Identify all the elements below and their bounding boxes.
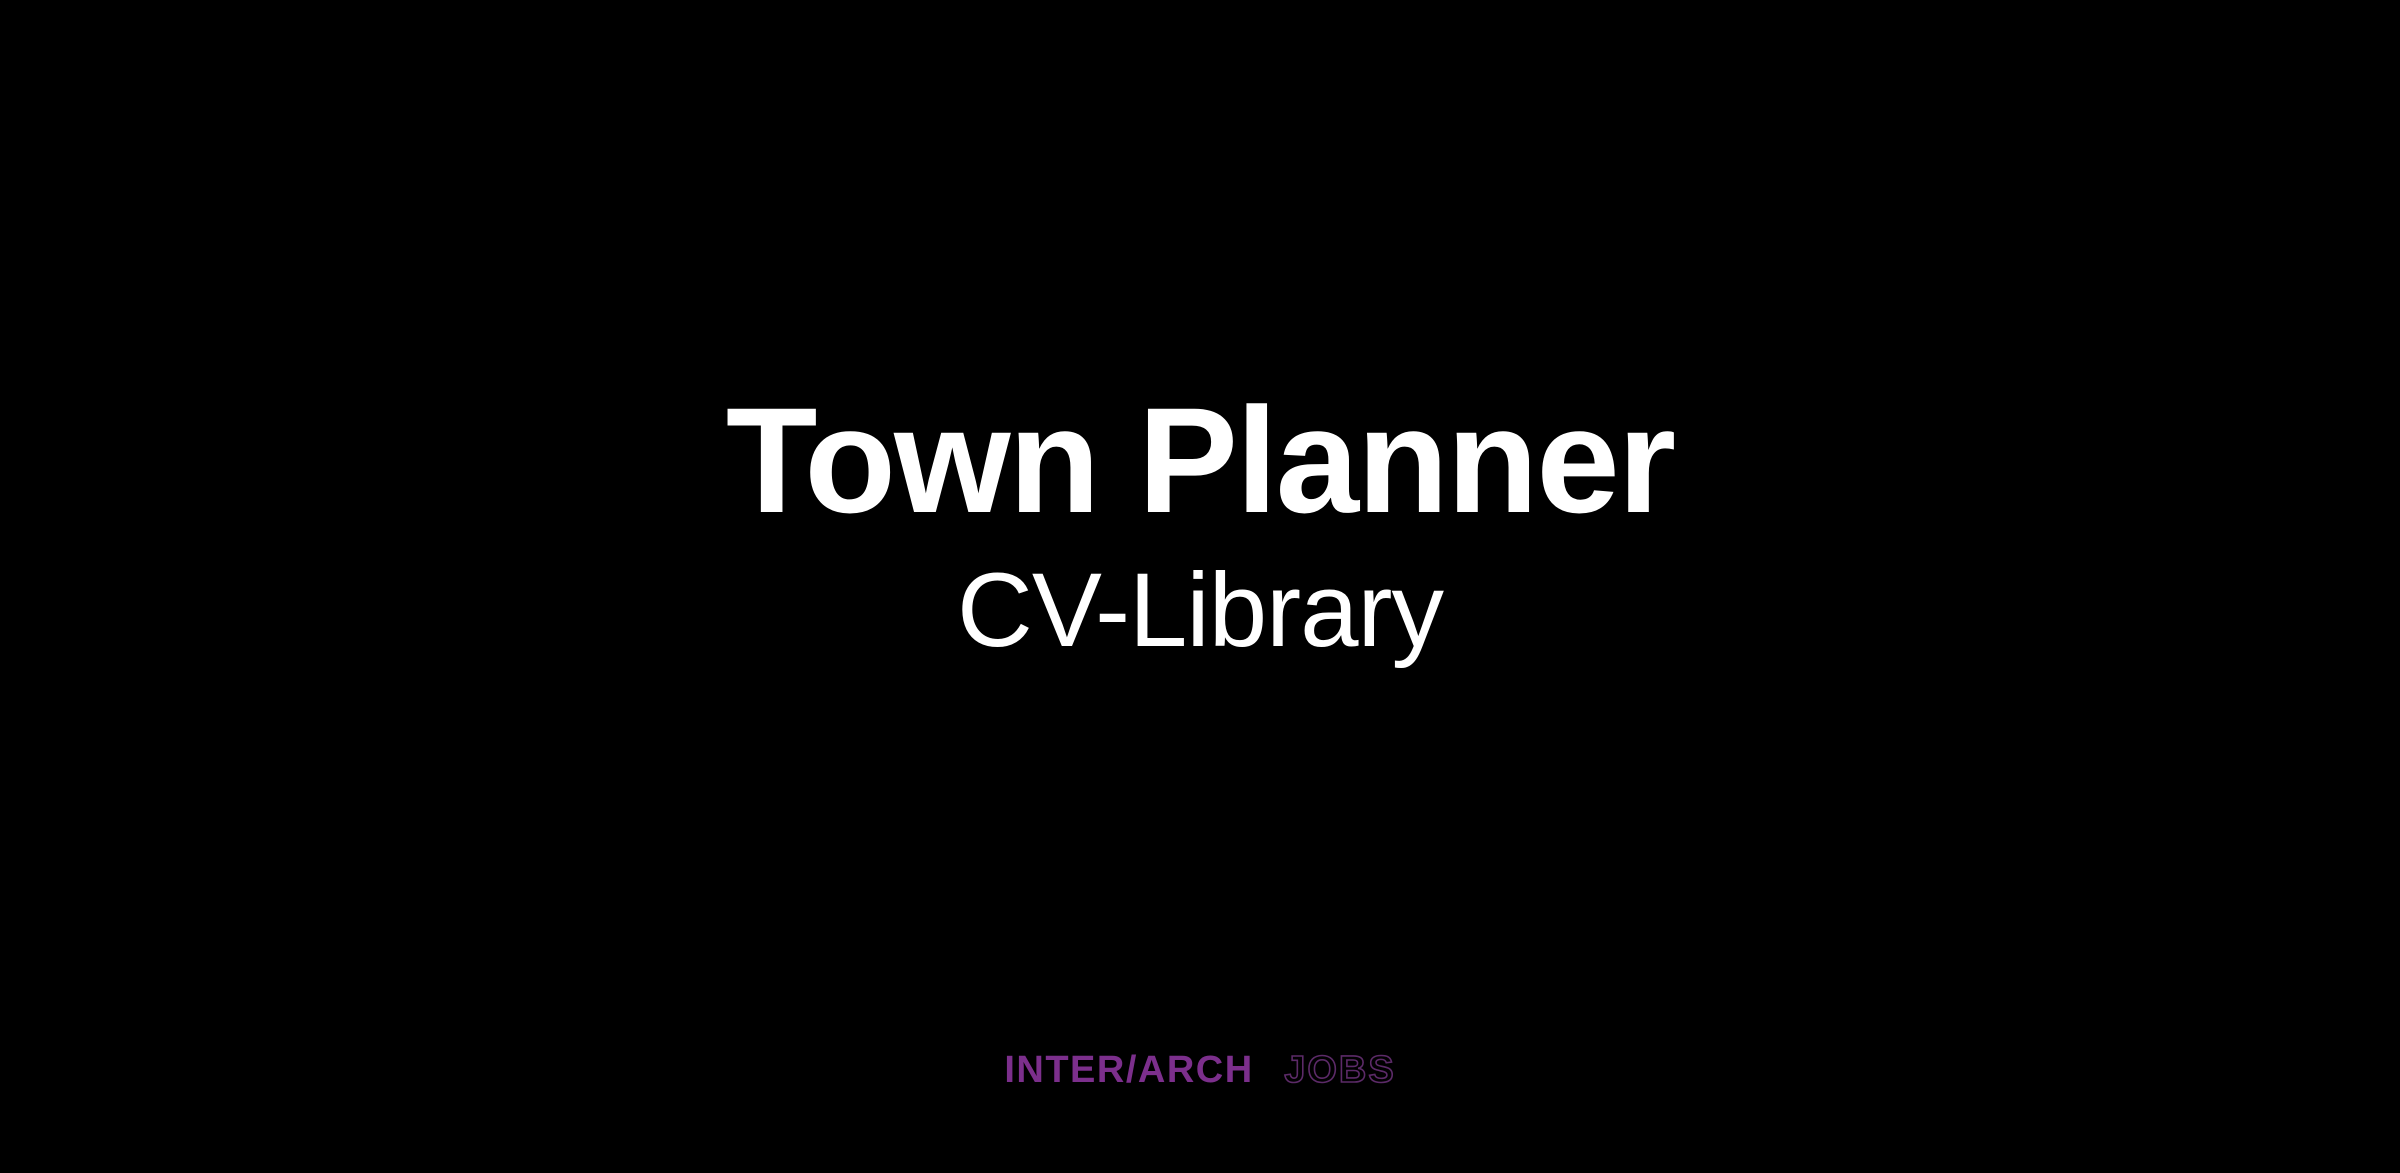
logo-primary-wordmark: INTER/ARCH [1004, 1051, 1253, 1089]
job-title: Town Planner [0, 385, 2400, 535]
interarch-jobs-logo: INTER/ARCH JOBS [0, 1051, 2400, 1089]
company-name: CV-Library [0, 558, 2400, 663]
page-background: Town Planner CV-Library INTER/ARCH JOBS [0, 0, 2400, 1173]
logo-secondary-wordmark-outlined: JOBS [1284, 1051, 1395, 1089]
